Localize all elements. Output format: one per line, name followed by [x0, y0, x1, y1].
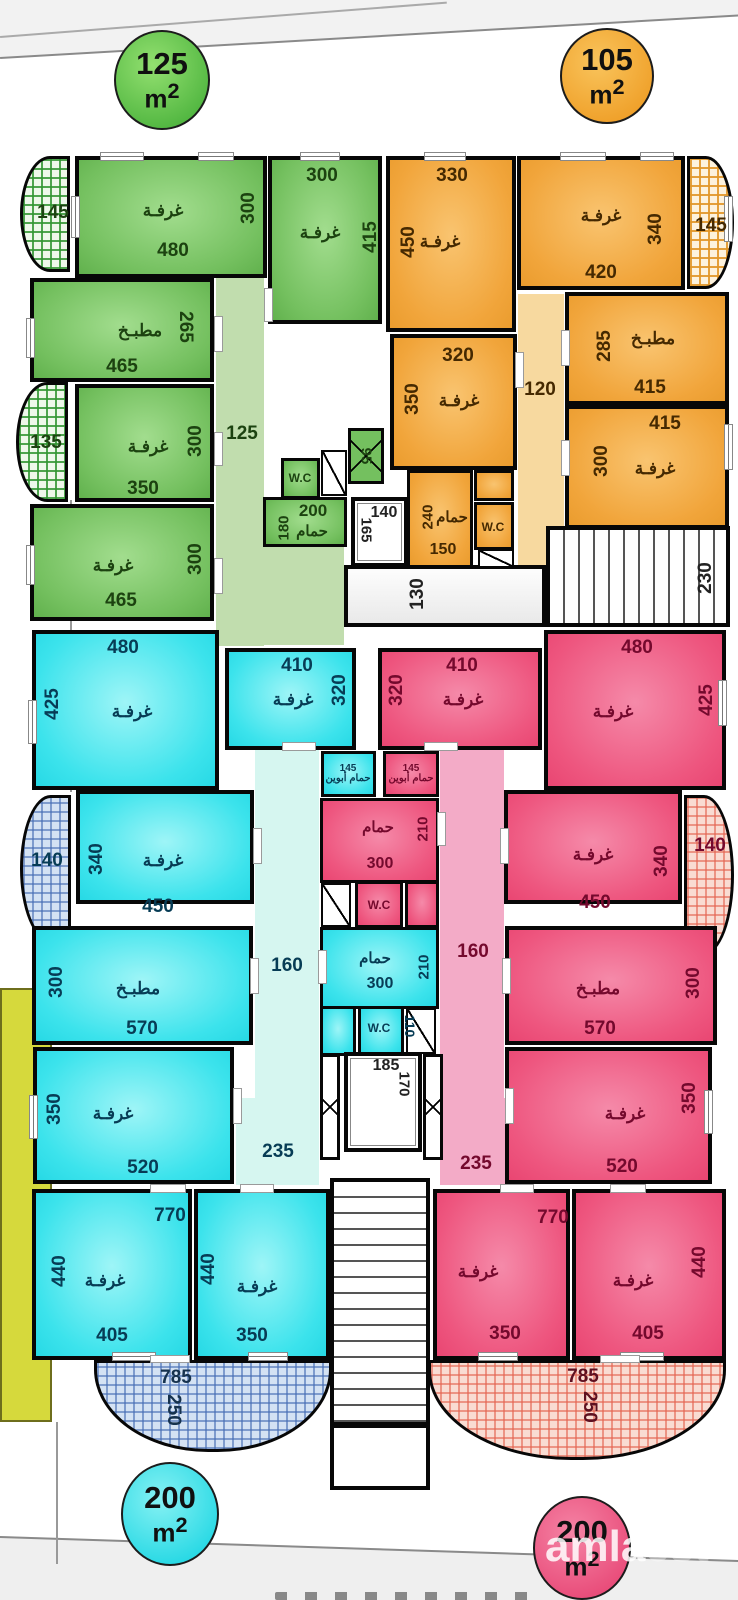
- room-label: غرفـة: [573, 845, 614, 865]
- dim-label: 210: [415, 816, 432, 841]
- door-opening: [214, 432, 223, 466]
- watermark-text-faint: est: [645, 1522, 709, 1571]
- room-label: غرفـة: [443, 690, 484, 710]
- door-opening: [233, 1088, 242, 1124]
- dim-label: 120: [524, 379, 556, 401]
- door-opening: [150, 1184, 186, 1193]
- door-opening: [253, 828, 262, 864]
- room-label: غرفـة: [605, 1104, 646, 1124]
- window-icon: [704, 1090, 713, 1134]
- dim-label: 300: [591, 445, 613, 477]
- area-unit: m2: [152, 1513, 187, 1545]
- room-label: حمام: [412, 773, 433, 784]
- dim-label: 480: [157, 240, 189, 262]
- dim-label: 785: [160, 1367, 192, 1389]
- dim-label: 300: [46, 966, 68, 998]
- dim-label: 140: [31, 850, 63, 872]
- dim-label: 170: [396, 1071, 413, 1096]
- room-label: غرفـة: [93, 1104, 134, 1124]
- room-label: غرفـة: [300, 223, 341, 243]
- dim-label: 300: [367, 975, 394, 993]
- dim-label: 440: [198, 1253, 220, 1285]
- door-opening: [424, 742, 458, 751]
- window-icon: [300, 152, 340, 161]
- room-label: غرفـة: [112, 702, 153, 722]
- room-closet: [405, 881, 439, 928]
- room-label: مطبـخ: [116, 979, 160, 999]
- dim-label: 450: [579, 892, 611, 914]
- dim-label: 350: [127, 478, 159, 500]
- room-label: W.C: [482, 520, 505, 534]
- stair-shaft: [330, 1424, 430, 1490]
- room-label: حمام: [436, 508, 468, 526]
- dim-label: 420: [585, 262, 617, 284]
- dim-label: 415: [634, 377, 666, 399]
- dim-label: 300: [185, 425, 207, 457]
- dim-label: 285: [594, 330, 616, 362]
- door-opening: [214, 558, 223, 594]
- room-label: W.C: [368, 1021, 391, 1035]
- window-icon: [478, 1352, 518, 1361]
- dim-label: 145: [695, 215, 727, 237]
- dim-label: 210: [416, 954, 433, 979]
- room-label: غرفـة: [237, 1277, 278, 1297]
- watermark-text: amla: [545, 1522, 645, 1571]
- watermark: amlaest: [545, 1522, 709, 1572]
- door-leaf-icon: [321, 883, 351, 927]
- door-opening: [561, 440, 570, 476]
- door-opening: [515, 352, 524, 388]
- dim-label: 465: [106, 356, 138, 378]
- balcony: [94, 1360, 332, 1452]
- dim-label: 300: [238, 192, 260, 224]
- duct-shaft-icon: [423, 1054, 443, 1160]
- room-label: حمام: [362, 818, 394, 836]
- door-opening: [250, 958, 259, 994]
- room-label: 145 حمام أبوين: [385, 764, 437, 784]
- door-opening: [561, 330, 570, 366]
- door-opening: [150, 1355, 190, 1363]
- door-opening: [264, 288, 273, 322]
- dim-label: 135: [30, 432, 62, 454]
- unit-sup: 2: [168, 78, 180, 103]
- dim-label: 440: [689, 1246, 711, 1278]
- dim-label: 145: [37, 202, 69, 224]
- area-value: 200: [144, 1483, 196, 1513]
- room-label: غرفـة: [439, 391, 480, 411]
- dim-label: 95: [358, 448, 375, 465]
- plot-boundary-left2: [56, 1422, 58, 1564]
- dim-label: 570: [584, 1018, 616, 1040]
- dim-label: 300: [306, 165, 338, 187]
- unit-sup: 2: [176, 1512, 188, 1537]
- window-icon: [28, 700, 37, 744]
- dim-label: 300: [185, 543, 207, 575]
- dim-label: 165: [358, 517, 375, 542]
- room-label: W.C: [289, 471, 312, 485]
- window-icon: [640, 152, 674, 161]
- dim-label: 320: [386, 674, 408, 706]
- door-opening: [240, 1184, 274, 1193]
- room-label: غرفـة: [85, 1271, 126, 1291]
- door-opening: [600, 1355, 640, 1363]
- dim-label: 570: [126, 1018, 158, 1040]
- room-closet: [320, 1006, 356, 1056]
- corridor: [440, 748, 504, 1108]
- room-label: مطبـخ: [631, 329, 675, 349]
- door-opening: [502, 958, 511, 994]
- dim-label: 250: [578, 1391, 600, 1423]
- dim-label: 410: [446, 655, 478, 677]
- dim-label: 440: [49, 1255, 71, 1287]
- caption-fragment: [275, 1592, 545, 1600]
- dim-label: 770: [537, 1207, 569, 1229]
- dim-label: 140: [371, 504, 398, 522]
- dim-label: 130: [407, 578, 429, 610]
- dim-label: 350: [402, 383, 424, 415]
- window-icon: [26, 545, 35, 585]
- dim-label: 235: [262, 1141, 294, 1163]
- stairs: [330, 1178, 430, 1426]
- dim-label: 405: [632, 1323, 664, 1345]
- unit-letter: m: [144, 84, 167, 114]
- room-label: غرفـة: [273, 690, 314, 710]
- door-opening: [214, 316, 223, 352]
- area-value: 125: [136, 49, 188, 79]
- duct-shaft-icon: [320, 1054, 340, 1160]
- dim-label: 405: [96, 1325, 128, 1347]
- dim-label: 480: [621, 637, 653, 659]
- window-icon: [424, 152, 466, 161]
- room-label: حمام: [296, 522, 328, 540]
- unit-sup: 2: [613, 74, 625, 99]
- dim-label: 465: [105, 590, 137, 612]
- dim-label: 350: [679, 1082, 701, 1114]
- room-label: أبوين: [325, 773, 346, 784]
- door-leaf-icon: [321, 450, 347, 496]
- unit-letter: m: [589, 80, 612, 110]
- dim-label: 320: [442, 345, 474, 367]
- room-label: غرفـة: [420, 232, 461, 252]
- corridor: [255, 748, 319, 1108]
- room-closet: [474, 470, 514, 501]
- door-opening: [437, 812, 446, 846]
- dim-label: 230: [695, 562, 717, 594]
- window-icon: [724, 424, 733, 470]
- door-opening: [282, 742, 316, 751]
- area-badge-cyan: 200 m2: [121, 1462, 219, 1566]
- window-icon: [560, 152, 606, 161]
- corridor: [262, 545, 344, 645]
- dim-label: 235: [460, 1153, 492, 1175]
- room-label: 145 حمام أبوين: [322, 764, 374, 784]
- window-icon: [198, 152, 234, 161]
- door-opening: [610, 1184, 646, 1193]
- dim-label: 340: [86, 843, 108, 875]
- dim-label: 140: [694, 835, 726, 857]
- dim-label: 425: [42, 688, 64, 720]
- dim-label: 350: [236, 1325, 268, 1347]
- door-opening: [500, 828, 509, 864]
- dim-label: 265: [174, 311, 196, 343]
- dim-label: 330: [436, 165, 468, 187]
- area-unit: m2: [144, 79, 179, 111]
- dim-label: 450: [398, 226, 420, 258]
- unit-letter: m: [152, 1518, 175, 1548]
- dim-label: 520: [127, 1157, 159, 1179]
- dim-label: 200: [299, 501, 327, 521]
- door-opening: [318, 950, 327, 984]
- dim-label: 340: [645, 213, 667, 245]
- dim-label: 320: [329, 674, 351, 706]
- window-icon: [71, 196, 80, 238]
- dim-label: 350: [44, 1093, 66, 1125]
- dim-label: 125: [226, 423, 258, 445]
- dim-label: 450: [142, 896, 174, 918]
- floor-plan: 145 غرفـة 480 300 300 غرفـة 415 مطبـخ 26…: [0, 0, 738, 1600]
- corridor: [216, 278, 264, 646]
- dim-label: 520: [606, 1156, 638, 1178]
- room-label: غرفـة: [458, 1262, 499, 1282]
- dim-label: 415: [649, 413, 681, 435]
- dim-label: 160: [457, 941, 489, 963]
- dim-label: 110: [402, 1015, 418, 1038]
- dim-label: 410: [281, 655, 313, 677]
- dim-label: 785: [567, 1366, 599, 1388]
- dim-label: 350: [489, 1323, 521, 1345]
- room-label: غرفـة: [143, 851, 184, 871]
- room-label: غرفـة: [593, 702, 634, 722]
- room-label: غرفـة: [613, 1271, 654, 1291]
- dim-label: 425: [696, 684, 718, 716]
- dim-label: 770: [154, 1205, 186, 1227]
- dim-label: 250: [162, 1394, 184, 1426]
- window-icon: [26, 318, 35, 358]
- dim-label: 300: [683, 967, 705, 999]
- area-unit: m2: [589, 75, 624, 107]
- area-value: 105: [581, 45, 633, 75]
- dim-label: 180: [276, 515, 293, 540]
- room-label: حمام: [359, 949, 391, 967]
- dim-label: 415: [360, 221, 382, 253]
- room-label: غرفـة: [581, 206, 622, 226]
- window-icon: [29, 1095, 38, 1139]
- room-label: غرفـة: [93, 556, 134, 576]
- dim-label: 300: [367, 855, 394, 873]
- room-label: غرفـة: [635, 459, 676, 479]
- room-label: W.C: [368, 898, 391, 912]
- area-badge-orange: 105 m2: [560, 28, 654, 124]
- dim-label: 240: [420, 504, 437, 529]
- window-icon: [100, 152, 144, 161]
- area-badge-green: 125 m2: [114, 30, 210, 130]
- door-opening: [500, 1184, 534, 1193]
- window-icon: [718, 680, 727, 726]
- entrance-hall: [344, 565, 546, 627]
- room-label: مطبـخ: [118, 321, 162, 341]
- room-label: حمام: [349, 773, 370, 784]
- dim-label: 340: [651, 845, 673, 877]
- door-opening: [505, 1088, 514, 1124]
- dim-label: 150: [430, 541, 457, 559]
- door-leaf-icon: [478, 549, 514, 568]
- room-label: أبوين: [388, 773, 409, 784]
- window-icon: [248, 1352, 288, 1361]
- room-label: غرفـة: [143, 201, 184, 221]
- dim-label: 160: [271, 955, 303, 977]
- room-label: غرفـة: [128, 437, 169, 457]
- room-label: مطبـخ: [576, 979, 620, 999]
- dim-label: 480: [107, 637, 139, 659]
